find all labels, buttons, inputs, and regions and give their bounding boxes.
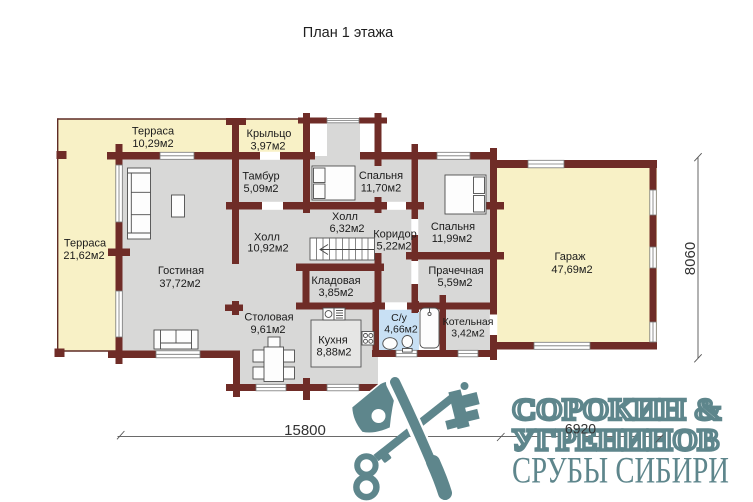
- svg-text:Крыльцо: Крыльцо: [247, 128, 292, 140]
- svg-text:8,88м2: 8,88м2: [316, 347, 351, 359]
- svg-text:11,70м2: 11,70м2: [361, 183, 401, 195]
- svg-text:Спальня: Спальня: [431, 221, 475, 233]
- svg-text:3,85м2: 3,85м2: [318, 287, 353, 299]
- svg-text:9,61м2: 9,61м2: [250, 324, 285, 336]
- svg-text:5,22м2: 5,22м2: [376, 241, 411, 253]
- svg-text:Коридор: Коридор: [373, 229, 416, 241]
- svg-text:21,62м2: 21,62м2: [63, 250, 104, 262]
- svg-text:Терраса: Терраса: [64, 238, 107, 250]
- svg-text:Котельная: Котельная: [443, 316, 494, 328]
- svg-text:Гостиная: Гостиная: [158, 265, 204, 277]
- svg-text:8060: 8060: [682, 242, 699, 275]
- svg-text:37,72м2: 37,72м2: [159, 278, 200, 290]
- svg-text:15800: 15800: [284, 422, 326, 439]
- svg-text:Прачечная: Прачечная: [428, 265, 483, 277]
- svg-text:Кладовая: Кладовая: [311, 275, 360, 287]
- svg-text:6,32м2: 6,32м2: [329, 223, 364, 235]
- svg-text:10,29м2: 10,29м2: [132, 138, 173, 150]
- svg-text:5,59м2: 5,59м2: [437, 277, 472, 289]
- svg-text:3,42м2: 3,42м2: [451, 328, 485, 340]
- svg-text:С/у: С/у: [391, 312, 408, 324]
- svg-text:План 1 этажа: План 1 этажа: [303, 25, 394, 41]
- svg-text:Холл: Холл: [332, 211, 358, 223]
- svg-text:6920: 6920: [565, 421, 596, 437]
- svg-text:10,92м2: 10,92м2: [247, 243, 288, 255]
- svg-text:4,66м2: 4,66м2: [384, 324, 418, 336]
- svg-text:Терраса: Терраса: [132, 126, 175, 138]
- svg-text:Столовая: Столовая: [244, 312, 293, 324]
- svg-text:СРУБЫ СИБИРИ: СРУБЫ СИБИРИ: [512, 451, 729, 492]
- svg-text:5,09м2: 5,09м2: [243, 183, 278, 195]
- svg-text:Кухня: Кухня: [318, 335, 347, 347]
- svg-text:Гараж: Гараж: [554, 251, 586, 263]
- svg-text:Тамбур: Тамбур: [242, 171, 279, 183]
- svg-text:11,99м2: 11,99м2: [432, 233, 472, 245]
- svg-text:3,97м2: 3,97м2: [250, 141, 285, 153]
- svg-text:47,69м2: 47,69м2: [551, 264, 592, 276]
- svg-text:Спальня: Спальня: [359, 170, 403, 182]
